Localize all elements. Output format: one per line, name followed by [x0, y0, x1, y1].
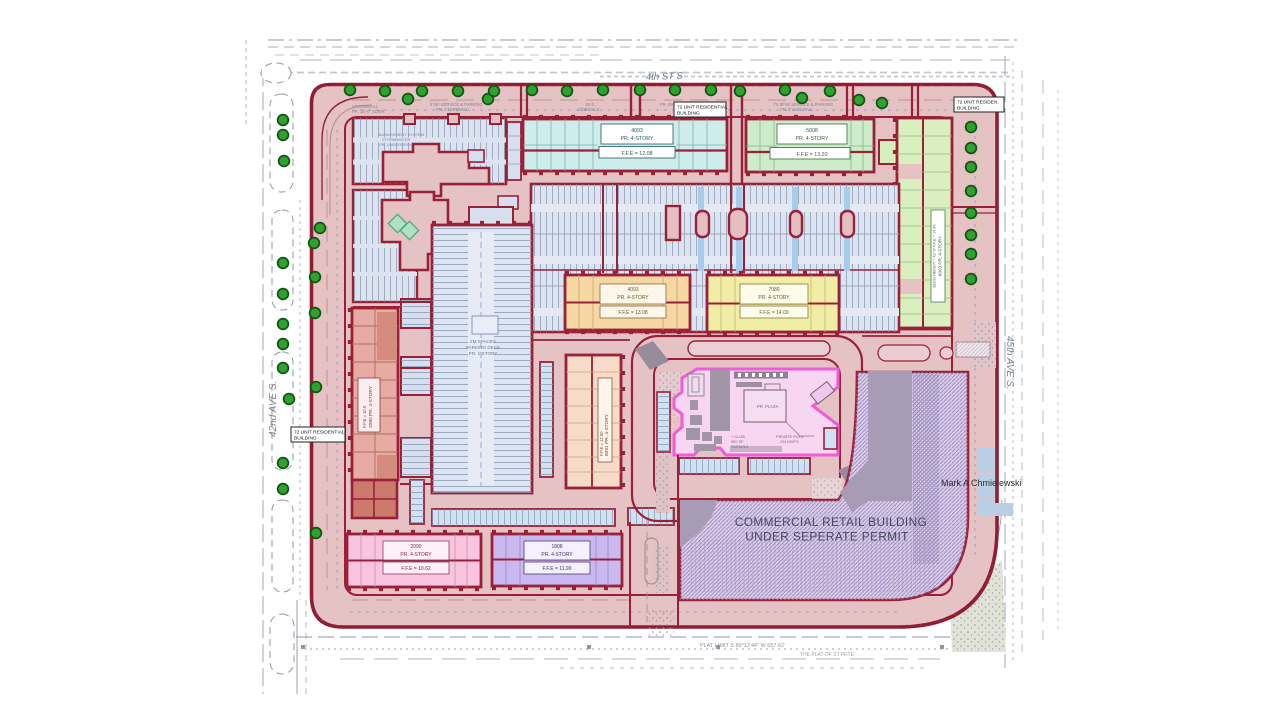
svg-text:PR. 4-STORY: PR. 4-STORY [617, 295, 649, 301]
svg-text:PR. 4-STORY: PR. 4-STORY [620, 136, 654, 142]
svg-text:BUILDING: BUILDING [294, 436, 317, 442]
svg-text:F.F.E = 12.08: F.F.E = 12.08 [621, 151, 652, 157]
svg-text:PARKING DECK: PARKING DECK [466, 345, 501, 350]
svg-text:45th AVE S.: 45th AVE S. [1004, 336, 1015, 390]
svg-text:COMMERCIAL RETAIL BUILDING: COMMERCIAL RETAIL BUILDING [735, 515, 927, 529]
svg-text:PR. 4-STORY: PR. 4-STORY [541, 552, 573, 558]
svg-text:4th ST S: 4th ST S [646, 71, 684, 83]
svg-text:PR. 4-STORY: PR. 4-STORY [400, 552, 432, 558]
svg-text:1808: 1808 [551, 544, 562, 550]
svg-text:42nd AVE S.: 42nd AVE S. [268, 381, 279, 437]
svg-text:PR. 8' USB WALL: PR. 8' USB WALL [780, 107, 814, 112]
svg-text:PR. 15'-0" SDWK: PR. 15'-0" SDWK [352, 109, 385, 114]
svg-text:8091 PR. 4-STORY: 8091 PR. 4-STORY [604, 413, 610, 456]
svg-text:PARKING: PARKING [731, 444, 748, 449]
svg-text:2090: 2090 [410, 544, 421, 550]
svg-text:F.F.E = 13.20: F.F.E = 13.20 [796, 152, 827, 158]
svg-text:F.F.E = 12.00: F.F.E = 12.00 [599, 431, 604, 456]
svg-text:BUILDING: BUILDING [677, 111, 700, 117]
svg-text:PLAT LIMIT S 89°12'44" W 657: PLAT LIMIT S 89°12'44" W 657.62' [700, 643, 785, 649]
svg-text:4093: 4093 [631, 128, 643, 134]
svg-text:F.F.E = 13.08: F.F.E = 13.08 [618, 310, 648, 316]
svg-text:6003 PR. 4-STORY: 6003 PR. 4-STORY [938, 236, 943, 276]
svg-text:F.F.E = 14.00: F.F.E = 14.00 [759, 310, 789, 316]
svg-text:BUILDING: BUILDING [957, 106, 980, 112]
svg-text:F.F.E = 10.62: F.F.E = 10.62 [401, 566, 431, 572]
svg-text:5808: 5808 [806, 128, 818, 134]
svg-text:PR. PLAZA: PR. PLAZA [757, 404, 779, 409]
svg-text:F.F.E = 10.5: F.F.E = 10.5 [362, 405, 367, 428]
svg-text:72 UNIT RESIDEN.: 72 UNIT RESIDEN. [957, 100, 999, 106]
svg-text:ON UNITS: ON UNITS [780, 439, 799, 444]
svg-text:PR. 4-STORY: PR. 4-STORY [795, 136, 829, 142]
svg-text:72 UNIT RESIDENTIAL: 72 UNIT RESIDENTIAL [677, 105, 728, 111]
svg-text:BLDG HEIGHT = 42'-0" F.F.E =: BLDG HEIGHT = 42'-0" F.F.E = 14.00 [933, 225, 937, 288]
svg-text:SIDEWALK: SIDEWALK [578, 107, 600, 112]
svg-text:THE PLAT OF ST PETE: THE PLAT OF ST PETE [800, 652, 855, 658]
svg-text:F.F.E = 11.90: F.F.E = 11.90 [543, 566, 572, 572]
svg-text:Mark A Chmielewski: Mark A Chmielewski [941, 478, 1022, 488]
svg-text:PR. 4-STORY: PR. 4-STORY [758, 295, 790, 301]
svg-text:72 UNIT RESIDENTIAL: 72 UNIT RESIDENTIAL [294, 430, 345, 436]
svg-text:2M SPACES: 2M SPACES [470, 339, 496, 344]
svg-text:7080: 7080 [768, 287, 779, 293]
svg-text:2080 PR. 4-STORY: 2080 PR. 4-STORY [368, 385, 374, 428]
svg-text:UNDER SEPERATE PERMIT: UNDER SEPERATE PERMIT [745, 530, 909, 544]
svg-text:PR. 1-STORY: PR. 1-STORY [469, 351, 498, 356]
svg-text:PR. STORMWALL: PR. STORMWALL [436, 107, 471, 112]
svg-text:4093: 4093 [627, 287, 638, 293]
